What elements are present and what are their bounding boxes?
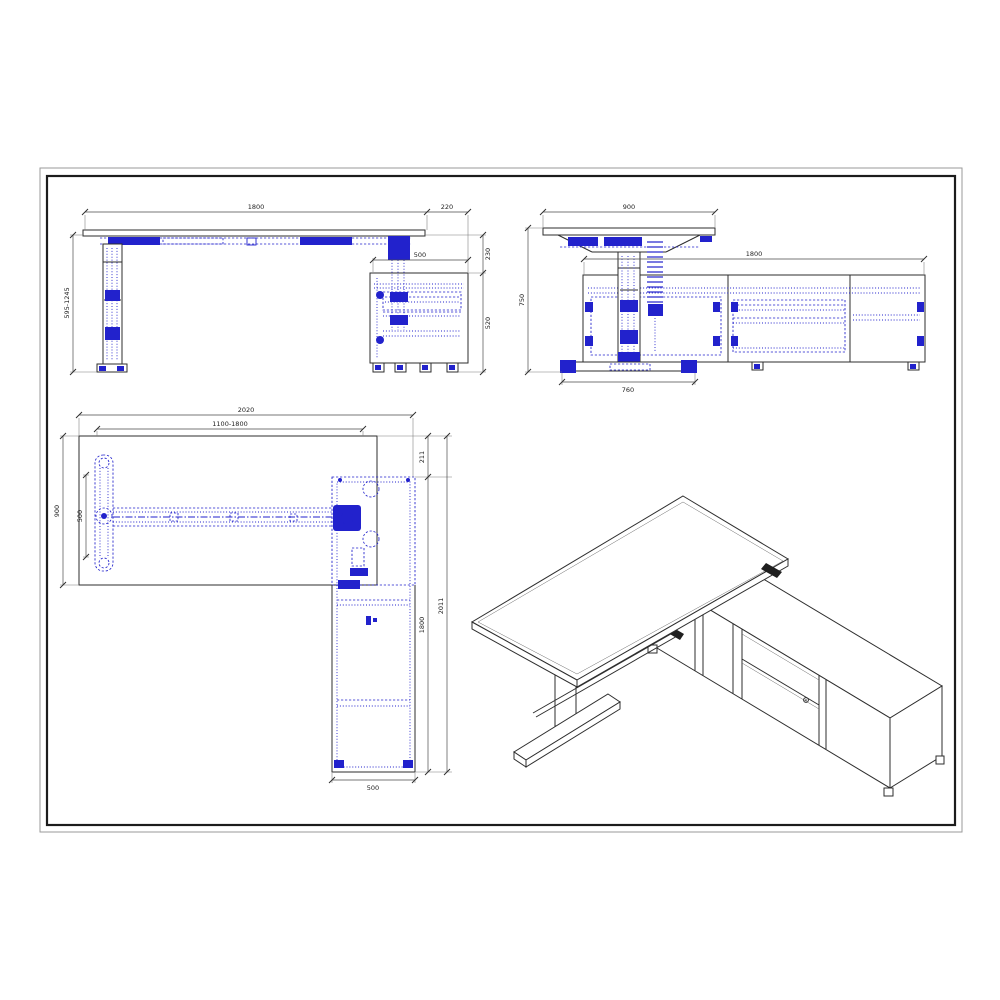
- dim-rear-offset: 211: [418, 451, 426, 463]
- dim-cabinet-height: 520: [484, 317, 492, 329]
- dim-desk-depth: 900: [623, 203, 635, 211]
- dim-height-range: 595-1245: [63, 287, 71, 318]
- dim-plan-cabinet-width: 500: [367, 784, 379, 792]
- side-foot: [560, 360, 697, 373]
- front-cabinet: [370, 273, 468, 372]
- drawing-sheet: 1800 220 500 595-1245 230 520: [0, 0, 1000, 1000]
- side-desktop: [543, 228, 715, 235]
- dim-plan-cabinet-length: 1800: [418, 617, 426, 634]
- side-lift-column: [618, 252, 640, 362]
- dim-frame-range: 1100-1800: [212, 420, 247, 428]
- dim-foot-length: 760: [622, 386, 634, 394]
- plan-marking: [366, 616, 371, 625]
- front-desktop: [83, 230, 425, 236]
- dim-cabinet-length: 1800: [746, 250, 763, 258]
- dim-cabinet-depth: 500: [414, 251, 426, 259]
- dim-overall-depth: 2011: [437, 598, 445, 615]
- dim-gap: 230: [484, 248, 492, 260]
- dim-side-overhang: 220: [441, 203, 453, 211]
- dim-foot-width: 500: [76, 510, 84, 522]
- dim-fixed-height: 750: [518, 294, 526, 306]
- dim-desk-width: 1800: [248, 203, 265, 211]
- side-cable-outlet: [700, 236, 712, 242]
- dim-plan-desk-depth: 900: [53, 505, 61, 517]
- technical-drawing: 1800 220 500 595-1245 230 520: [0, 0, 1000, 1000]
- dim-overall-width: 2020: [238, 406, 255, 414]
